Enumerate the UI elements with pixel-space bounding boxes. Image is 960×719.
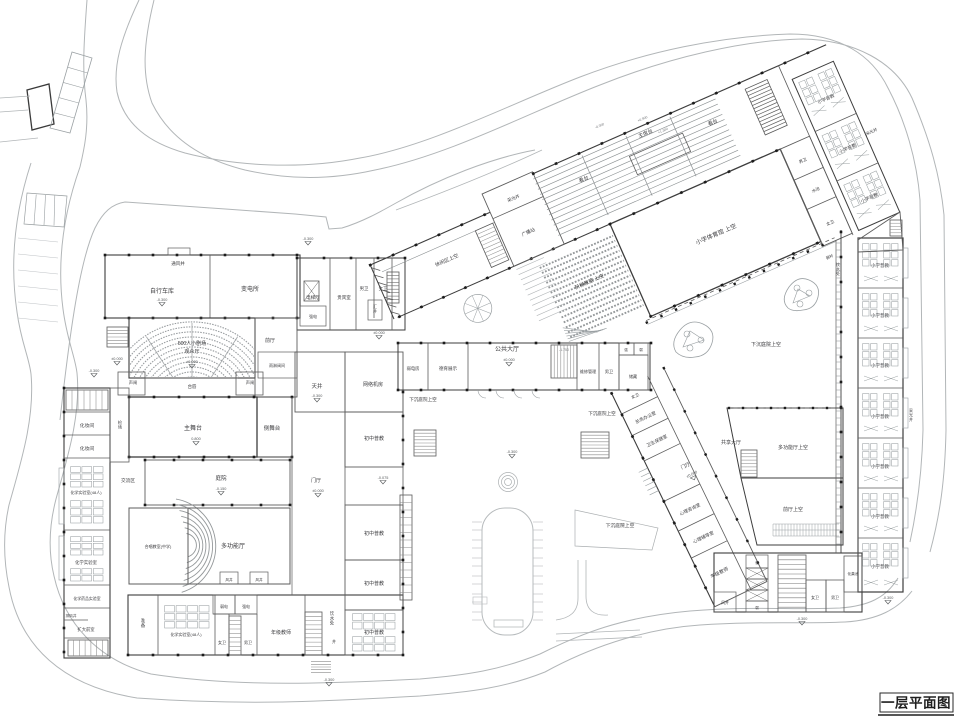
svg-text:排风井: 排风井 (65, 613, 76, 618)
svg-text:小学普教: 小学普教 (871, 262, 889, 269)
svg-text:强: 强 (755, 560, 759, 565)
svg-text:年级教师: 年级教师 (271, 629, 291, 636)
svg-text:变电所: 变电所 (241, 285, 259, 293)
svg-text:声闸: 声闸 (129, 379, 137, 386)
svg-text:初中普教: 初中普教 (364, 530, 384, 537)
svg-text:男卫: 男卫 (605, 369, 613, 374)
svg-text:-0.300: -0.300 (89, 369, 100, 373)
svg-text:化粪池: 化粪池 (847, 571, 858, 576)
svg-text:初中普教: 初中普教 (364, 580, 384, 587)
svg-text:初中普教: 初中普教 (364, 435, 384, 442)
svg-text:庭院: 庭院 (215, 474, 227, 482)
svg-text:小学普教: 小学普教 (871, 413, 889, 420)
svg-text:-0.300: -0.300 (324, 678, 335, 682)
svg-text:小学普教: 小学普教 (871, 312, 889, 319)
svg-text:强电: 强电 (242, 604, 250, 609)
svg-text:饮水处: 饮水处 (330, 610, 335, 627)
svg-text:±0.000: ±0.000 (111, 357, 123, 361)
svg-text:观众厅: 观众厅 (184, 349, 199, 355)
svg-text:共享大厅: 共享大厅 (721, 439, 741, 446)
svg-text:±0.000: ±0.000 (503, 358, 515, 362)
svg-text:强: 强 (624, 347, 628, 352)
svg-text:通风井: 通风井 (171, 260, 185, 267)
svg-text:井: 井 (332, 638, 336, 644)
svg-text:下沉庭院上空: 下沉庭院上空 (606, 522, 635, 529)
svg-text:门厅: 门厅 (311, 477, 321, 484)
svg-text:男卫: 男卫 (244, 640, 252, 645)
svg-text:小学普教: 小学普教 (871, 513, 889, 520)
svg-text:维修管理: 维修管理 (580, 368, 596, 374)
svg-text:汇井: 汇井 (373, 303, 377, 314)
svg-text:弱电: 弱电 (220, 604, 228, 609)
svg-text:多功能厅: 多功能厅 (221, 542, 245, 550)
svg-text:0.800: 0.800 (191, 437, 201, 441)
svg-text:采光井: 采光井 (909, 408, 913, 422)
svg-text:弱: 弱 (755, 606, 759, 610)
svg-text:天井: 天井 (311, 382, 323, 390)
svg-text:-0.300: -0.300 (303, 237, 314, 241)
svg-text:-0.075: -0.075 (378, 476, 389, 480)
svg-text:强电: 强电 (309, 313, 317, 319)
svg-text:-1.750: -1.750 (559, 348, 569, 352)
svg-text:化学实验室: 化学实验室 (75, 559, 98, 566)
svg-text:-0.300: -0.300 (507, 450, 518, 454)
svg-text:扩大前室: 扩大前室 (77, 626, 95, 633)
svg-text:台唇: 台唇 (188, 383, 197, 390)
svg-text:下沉庭院上空: 下沉庭院上空 (409, 396, 437, 403)
svg-text:网络机房: 网络机房 (363, 381, 383, 388)
svg-text:女卫: 女卫 (811, 595, 819, 600)
svg-text:-0.300: -0.300 (883, 596, 894, 600)
svg-text:小学普教: 小学普教 (871, 362, 889, 369)
svg-text:贵宾室: 贵宾室 (337, 294, 351, 301)
svg-text:多功能厅上空: 多功能厅上空 (778, 444, 808, 451)
svg-text:主舞台: 主舞台 (184, 424, 202, 432)
svg-text:声闸: 声闸 (246, 379, 254, 386)
svg-text:弱电房: 弱电房 (407, 365, 420, 372)
svg-text:-0.300: -0.300 (797, 617, 808, 621)
svg-text:-0.150: -0.150 (216, 487, 227, 491)
svg-text:±0.000: ±0.000 (186, 360, 198, 364)
svg-text:雨淋阀间: 雨淋阀间 (269, 362, 285, 368)
svg-text:一层平面图: 一层平面图 (881, 696, 951, 711)
svg-text:前厅: 前厅 (265, 337, 275, 344)
svg-text:化妆间: 化妆间 (80, 445, 95, 452)
svg-text:风井: 风井 (225, 577, 233, 582)
svg-text:弱: 弱 (639, 348, 643, 352)
svg-text:储藏: 储藏 (629, 373, 637, 379)
svg-text:小学普教: 小学普教 (871, 563, 889, 570)
svg-text:初中普教: 初中普教 (364, 629, 384, 636)
svg-text:风井: 风井 (721, 600, 729, 605)
svg-text:前厅上空: 前厅上空 (783, 506, 803, 513)
svg-text:下沉庭院上空: 下沉庭院上空 (588, 410, 616, 417)
svg-text:准备: 准备 (141, 617, 146, 629)
svg-text:合唱教室(中学): 合唱教室(中学) (145, 543, 172, 549)
svg-text:±0.000: ±0.000 (312, 489, 324, 493)
svg-text:-0.300: -0.300 (312, 394, 323, 398)
svg-text:化学药品实验室: 化学药品实验室 (73, 596, 100, 601)
svg-text:侧舞台: 侧舞台 (264, 424, 281, 432)
svg-text:男卫: 男卫 (831, 595, 839, 600)
svg-text:500人小剧场: 500人小剧场 (178, 340, 206, 347)
svg-text:±0.000: ±0.000 (373, 331, 385, 335)
svg-text:化妆间: 化妆间 (80, 422, 95, 429)
svg-text:自行车库: 自行车库 (150, 287, 174, 295)
svg-text:化学实验室(48人): 化学实验室(48人) (70, 489, 102, 495)
svg-text:公共大厅: 公共大厅 (495, 345, 519, 353)
svg-text:-0.300: -0.300 (157, 298, 168, 302)
svg-text:下沉庭院上空: 下沉庭院上空 (751, 341, 781, 348)
svg-text:小学普教: 小学普教 (871, 463, 889, 470)
svg-text:饮水处: 饮水处 (836, 262, 840, 276)
svg-text:德育展示: 德育展示 (439, 365, 457, 372)
svg-text:交流区: 交流区 (121, 477, 135, 484)
svg-text:化学实验室(48人): 化学实验室(48人) (170, 631, 202, 637)
svg-text:女卫: 女卫 (218, 639, 226, 645)
svg-text:风井: 风井 (255, 577, 263, 582)
